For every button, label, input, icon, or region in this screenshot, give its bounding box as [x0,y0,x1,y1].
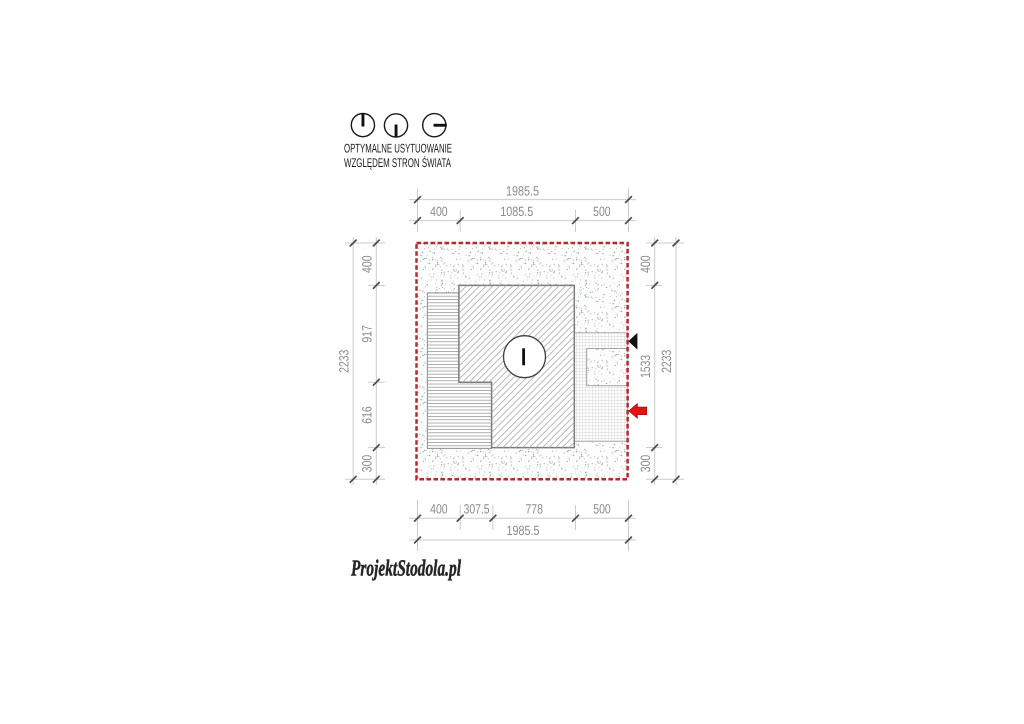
svg-text:300: 300 [360,455,375,473]
svg-text:400: 400 [430,204,448,219]
svg-text:400: 400 [430,501,448,516]
svg-text:2233: 2233 [337,350,352,373]
svg-text:2233: 2233 [659,350,674,373]
svg-text:1533: 1533 [638,355,653,378]
svg-text:400: 400 [360,255,375,273]
svg-text:500: 500 [593,501,611,516]
svg-text:1985.5: 1985.5 [506,183,539,198]
svg-text:OPTYMALNE USYTUOWANIE: OPTYMALNE USYTUOWANIE [344,141,452,155]
svg-text:778: 778 [525,501,543,516]
svg-text:WZGLĘDEM STRON ŚWIATA: WZGLĘDEM STRON ŚWIATA [344,155,451,170]
svg-text:307.5: 307.5 [464,501,490,516]
svg-text:300: 300 [638,455,653,473]
svg-text:500: 500 [593,204,611,219]
svg-text:ProjektStodola.pl: ProjektStodola.pl [350,556,461,581]
svg-text:616: 616 [360,406,375,424]
svg-text:917: 917 [360,325,375,343]
svg-text:1985.5: 1985.5 [507,523,540,538]
svg-text:1085.5: 1085.5 [500,204,533,219]
svg-text:400: 400 [638,255,653,273]
